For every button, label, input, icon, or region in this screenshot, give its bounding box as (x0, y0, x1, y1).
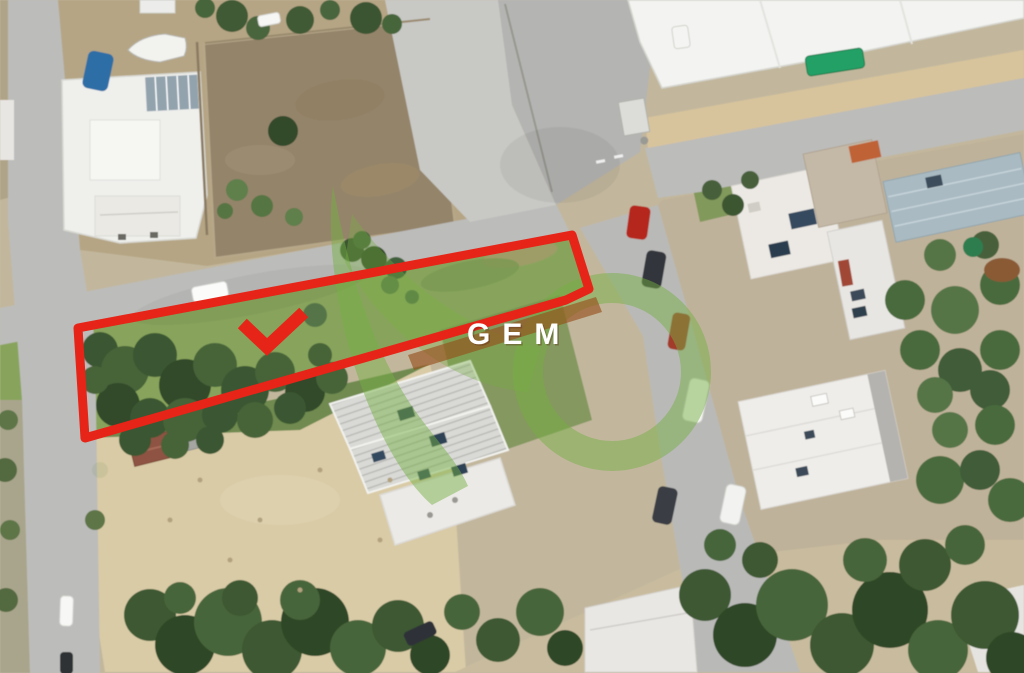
aerial-scene: GEM GEM (0, 0, 1024, 673)
small-structure (0, 100, 14, 160)
satellite-image: GEM GEM (0, 0, 1024, 673)
gem-watermark-text: GEM GEM (467, 318, 573, 353)
tan-house-b (803, 138, 893, 227)
terrace (95, 196, 180, 236)
dark-car (60, 652, 73, 673)
small-structure (140, 0, 175, 13)
palm-tree (963, 237, 983, 257)
dirt-spot (984, 258, 1020, 282)
white-car (59, 596, 73, 626)
white-car (672, 25, 691, 49)
roof-vent (452, 497, 458, 503)
road-shading (500, 127, 620, 203)
window (150, 232, 158, 238)
sand-light-patch (220, 475, 340, 525)
roof-vent (427, 512, 433, 518)
roof-section (90, 120, 160, 180)
solar-panel-array (145, 75, 199, 112)
watermark-text: GEM (467, 318, 571, 351)
window (118, 234, 126, 240)
field-patch (225, 145, 295, 175)
house-top-left (62, 72, 207, 243)
